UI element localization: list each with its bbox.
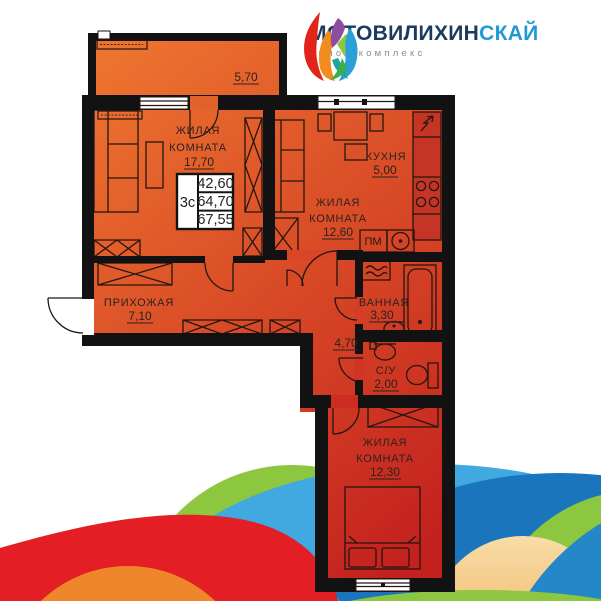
living2-name-line2: КОМНАТА — [309, 213, 367, 225]
balcony-corner-notch — [98, 31, 110, 39]
hallway-area: 7,10 — [128, 309, 152, 323]
bathroom-area: 3,30 — [370, 308, 394, 322]
apartment-info-box: 3с 42,60 64,70 67,55 — [177, 174, 234, 229]
wc-area: 2,00 — [374, 377, 398, 391]
window-bedroom — [356, 579, 410, 591]
living3-area: 12,30 — [370, 465, 400, 479]
corridor-area: 4,70 — [334, 336, 358, 350]
window-kitchen — [318, 96, 395, 109]
bedroom-door-opening — [331, 395, 358, 408]
balcony-area: 5,70 — [234, 70, 258, 84]
brand-title-accent: СКАЙ — [479, 22, 538, 45]
floorplan-canvas: 5,70 ЖИЛАЯ КОМНАТА 17,70 КУХНЯ 5,00 ЖИЛА… — [0, 0, 601, 601]
kitchen-counter-symbol — [413, 112, 441, 240]
flame-logo-icon — [303, 6, 361, 84]
kitchen-area: 5,00 — [373, 163, 397, 177]
area-value-2: 64,70 — [197, 194, 233, 210]
kitchen-name: КУХНЯ — [366, 151, 407, 163]
living1-area: 17,70 — [184, 155, 214, 169]
living2-area: 12,60 — [323, 225, 353, 239]
window-balcony — [140, 97, 188, 109]
dishwasher-label: ПМ — [364, 236, 381, 248]
decorative-waves — [0, 464, 601, 601]
door-arc-entrance — [48, 298, 83, 333]
wc-name: С/У — [376, 365, 397, 377]
balcony-door-opening — [190, 96, 218, 110]
entrance-opening — [82, 299, 94, 335]
brand-logo: МОТОВИЛИХИНСКАЙ жилой комплекс — [303, 6, 539, 59]
floor-living3 — [315, 395, 455, 592]
hallway-name: ПРИХОЖАЯ — [104, 297, 174, 309]
living3-name-line1: ЖИЛАЯ — [363, 437, 408, 449]
area-value-1: 42,60 — [197, 176, 233, 192]
living1-name-line1: ЖИЛАЯ — [176, 125, 221, 137]
living1-name-line2: КОМНАТА — [169, 142, 227, 154]
living2-name-line1: ЖИЛАЯ — [316, 197, 361, 209]
apartment-type: 3с — [180, 195, 195, 211]
area-value-3: 67,55 — [197, 212, 233, 228]
living3-name-line2: КОМНАТА — [356, 453, 414, 465]
